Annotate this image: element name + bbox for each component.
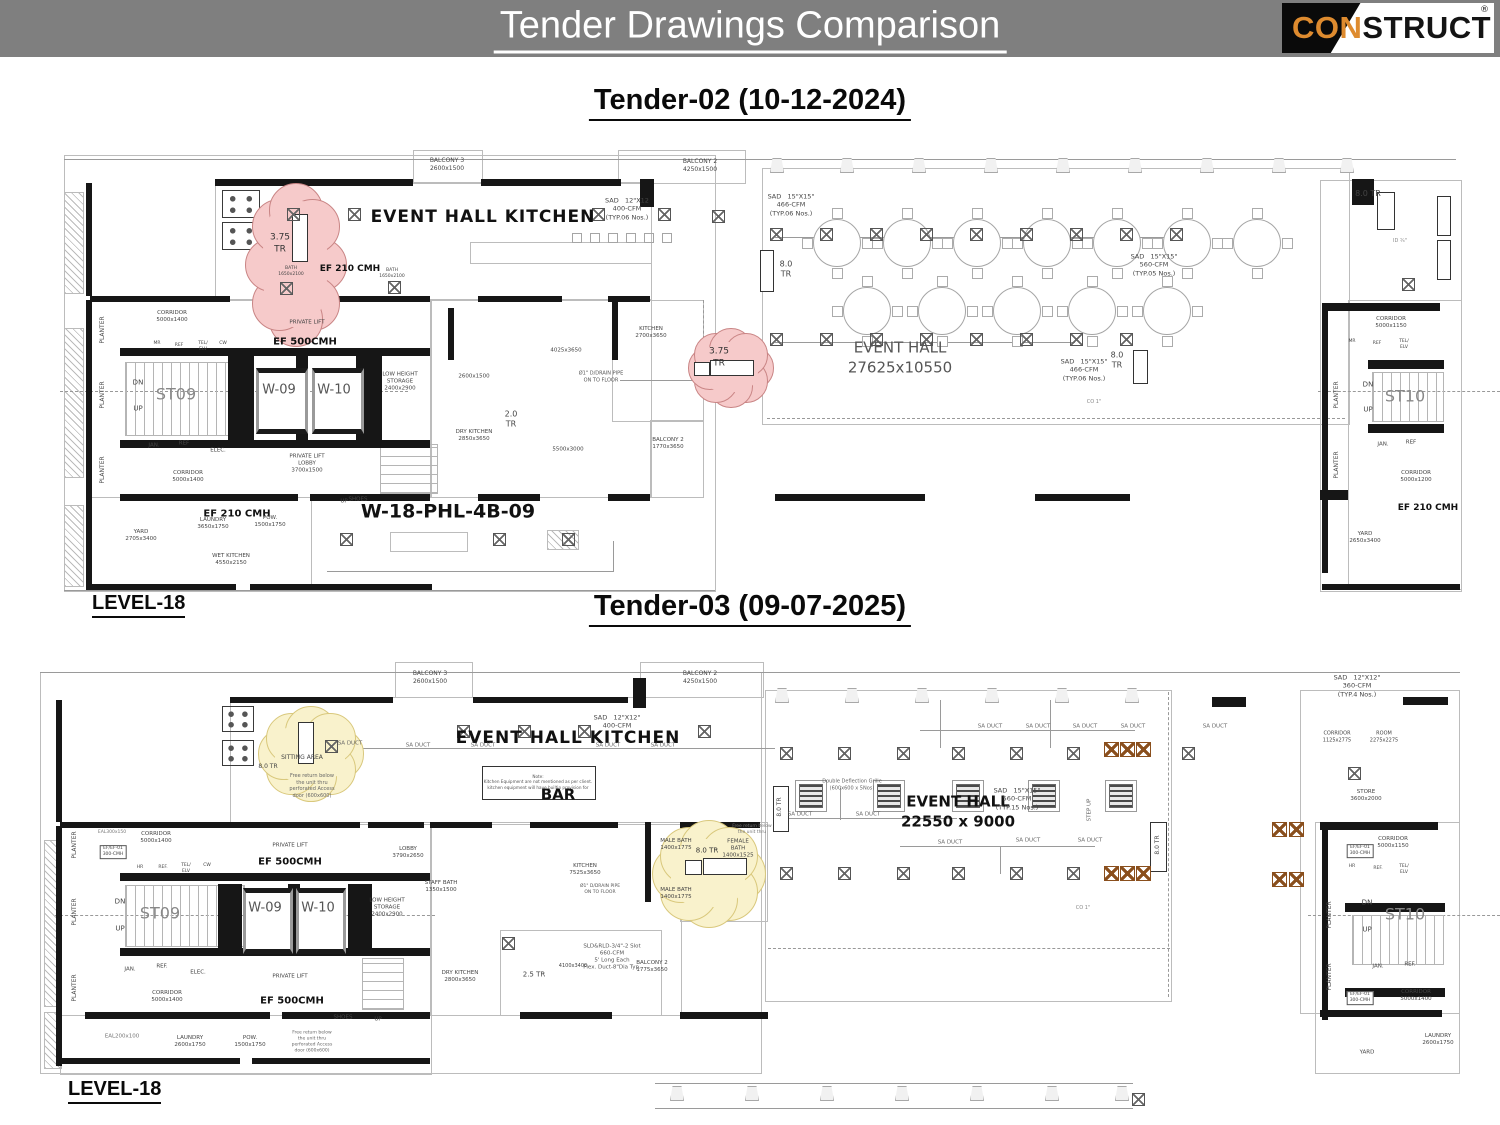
drawing-label: ELEC. xyxy=(190,969,206,976)
room-outline xyxy=(88,497,312,591)
wall xyxy=(473,697,628,703)
room-outline xyxy=(650,420,704,498)
wall xyxy=(250,584,432,590)
chair xyxy=(1042,268,1053,279)
drawing-label: 4025x3650 xyxy=(550,347,581,354)
wall xyxy=(120,494,298,501)
diffuser-icon xyxy=(1070,333,1083,346)
diffuser-icon xyxy=(698,725,711,738)
chair xyxy=(1087,336,1098,347)
chair xyxy=(1182,268,1193,279)
equipment-marker-icon xyxy=(1104,866,1119,881)
elevator-car xyxy=(312,368,364,434)
drawing-label: W-18-PHL-4B-09 xyxy=(361,500,535,525)
chair xyxy=(907,306,918,317)
drawing-label: EF 500CMH xyxy=(258,856,322,869)
wall xyxy=(645,822,651,902)
wall xyxy=(520,1012,612,1019)
diffuser-icon xyxy=(1070,228,1083,241)
equipment-marker-icon xyxy=(1289,872,1304,887)
staircase xyxy=(362,958,404,1010)
hatched-area xyxy=(64,505,84,587)
drawing-label: EF/EF-01 300-CMH xyxy=(100,845,127,859)
column xyxy=(970,1086,984,1101)
wall xyxy=(1212,697,1246,707)
ac-unit xyxy=(1133,350,1148,384)
drawing-label: Free return below the unit thru perforat… xyxy=(292,1030,333,1053)
drawing-label: REF xyxy=(175,343,184,349)
equipment-marker-icon xyxy=(1104,742,1119,757)
drawing-label: REF xyxy=(1373,341,1382,347)
drawing-label: 3.75 TR xyxy=(270,232,290,255)
drawing-label: HR xyxy=(1349,864,1356,870)
stool xyxy=(626,233,636,243)
drawing-label: MR xyxy=(1348,339,1355,345)
equipment-marker-icon xyxy=(1272,872,1287,887)
column xyxy=(1045,1086,1059,1101)
round-table xyxy=(883,219,931,267)
drawing-label: SAD 12"X12" 400-CFM xyxy=(594,714,641,731)
chair xyxy=(832,306,843,317)
chair xyxy=(1152,238,1163,249)
drawing-label: KITCHEN 2700x3650 xyxy=(635,326,666,340)
drawing-label: BALCONY 2 4250x1500 xyxy=(683,158,717,174)
drawing-label: DN xyxy=(1362,898,1373,907)
drawing-label: CORRIDOR 1125x2775 xyxy=(1323,731,1351,744)
plan-line xyxy=(900,846,1095,847)
equipment-marker-icon xyxy=(1120,866,1135,881)
drawing-label: EF 500CMH xyxy=(273,336,337,349)
staircase xyxy=(380,444,438,494)
ac-unit xyxy=(760,250,774,292)
drawing-label: DN xyxy=(133,378,144,387)
drawing-label: SAD 15"X15" 560-CFM (TYP.05 Nos.) xyxy=(1131,252,1178,277)
wall xyxy=(680,1012,768,1019)
header-bar: Tender Drawings Comparison xyxy=(0,0,1500,57)
drawing-label: SA DUCT xyxy=(596,742,621,749)
construct-logo: CONSTRUCT ® xyxy=(1282,3,1494,53)
drawing-label: DRY KITCHEN 2850x3650 xyxy=(456,429,493,443)
grille-diffuser-icon xyxy=(799,784,823,808)
hatched-area xyxy=(64,328,84,478)
drawing-label: FEMALE BATH 1400x1525 xyxy=(722,838,753,859)
drawing-label: SA DUCT xyxy=(1078,837,1103,844)
drawing-label: PRIVATE LIFT xyxy=(289,319,324,326)
drawing-label: LOW HEIGHT STORAGE 2400x2900 xyxy=(382,371,417,392)
drawing-label: 8.0 TR xyxy=(780,260,793,281)
drawing-label: 8.0 TR xyxy=(258,763,277,771)
drawing-label: PLANTER xyxy=(1333,451,1341,478)
column xyxy=(745,1086,759,1101)
wall xyxy=(85,1012,270,1019)
drawing-label: SA DUCT xyxy=(938,839,963,846)
diffuser-icon xyxy=(493,533,506,546)
chair xyxy=(1012,276,1023,287)
stool xyxy=(644,233,654,243)
drawing-label: BALCONY 2 1770x3650 xyxy=(652,437,684,451)
drawing-label: W-09 xyxy=(262,383,296,400)
chair xyxy=(1162,336,1173,347)
drawing-label: Free return below the unit thru xyxy=(732,824,771,836)
ac-unit xyxy=(694,362,710,376)
chair xyxy=(1192,306,1203,317)
drawing-label: SA DUCT xyxy=(471,742,496,749)
chair xyxy=(972,268,983,279)
wall xyxy=(1403,697,1448,705)
wall xyxy=(228,356,254,442)
drawing-label: W-10 xyxy=(317,383,351,400)
drawing-label: SLD&RLD-3/4"-2 Slot 660-CFM 5' Long Each… xyxy=(583,944,641,973)
drawing-label: SITTING AREA xyxy=(281,754,323,762)
wall xyxy=(1320,490,1348,500)
drawing-label: EF/EF-01 300-CMH xyxy=(1347,991,1374,1005)
diffuser-icon xyxy=(280,282,293,295)
logo-text: CONSTRUCT xyxy=(1292,10,1491,46)
wall xyxy=(1322,303,1440,311)
chair xyxy=(1082,238,1093,249)
drawing-label: PLANTER xyxy=(71,831,79,858)
drawing-label: UP xyxy=(115,924,124,933)
diffuser-icon xyxy=(952,747,965,760)
round-table xyxy=(1233,219,1281,267)
drawing-label: CORRIDOR 5000x1400 xyxy=(172,470,203,484)
drawing-label: CORRIDOR 5000x1400 xyxy=(140,831,171,845)
wall xyxy=(1322,311,1328,573)
plan-line xyxy=(655,1108,1133,1109)
round-table xyxy=(1023,219,1071,267)
round-table xyxy=(918,287,966,335)
drawing-label: CO 1" xyxy=(1087,399,1102,406)
equipment-marker-icon xyxy=(1289,822,1304,837)
chair xyxy=(1042,306,1053,317)
diffuser-icon xyxy=(287,208,300,221)
section-dash-line xyxy=(768,948,1170,949)
column xyxy=(820,1086,834,1101)
ac-unit xyxy=(1437,240,1451,280)
chair xyxy=(972,208,983,219)
drawing-label: ROOM 2275x2275 xyxy=(1370,731,1398,744)
drawing-label: UP xyxy=(340,498,347,505)
drawing-label: MALE BATH 1400x1775 xyxy=(660,838,691,852)
stool xyxy=(608,233,618,243)
drawing-label: STAFF BATH 1350x1500 xyxy=(425,880,458,894)
diffuser-icon xyxy=(1020,333,1033,346)
logo-con: CON xyxy=(1292,10,1362,45)
drawing-label: EVENT HALL KITCHEN xyxy=(371,206,596,228)
drawing-label: LOW HEIGHT STORAGE 2400x2900 xyxy=(369,897,404,918)
drawing-label: BATH 1650x2100 xyxy=(278,266,304,278)
drawing-label: SA DUCT xyxy=(1203,723,1228,730)
diffuser-icon xyxy=(502,937,515,950)
chair xyxy=(1132,306,1143,317)
wall xyxy=(252,1058,430,1064)
drawing-label: W-09 xyxy=(248,901,282,918)
chair xyxy=(1117,306,1128,317)
diffuser-icon xyxy=(712,210,725,223)
drawing-label: TEL/ ELV xyxy=(181,863,191,875)
drawing-label: SA DUCT xyxy=(1121,723,1146,730)
stove-symbol xyxy=(222,740,254,766)
drawing-label: BALCONY 2 1775x3650 xyxy=(636,960,668,974)
drawing-label: BAR xyxy=(541,785,576,805)
elevator-car xyxy=(296,888,346,954)
drawing-label: BALCONY 2 4250x1500 xyxy=(683,670,717,686)
wall xyxy=(478,296,562,302)
drawing-label: 4100x3400 xyxy=(559,963,587,970)
plan-line xyxy=(64,159,1456,160)
plan-line xyxy=(327,571,614,572)
drawing-label: EAL200x100 xyxy=(105,1033,140,1040)
wall xyxy=(633,678,646,708)
diffuser-icon xyxy=(325,740,338,753)
drawing-label: UP xyxy=(133,404,142,413)
column xyxy=(1115,1086,1129,1101)
drawing-label: SA DUCT xyxy=(978,723,1003,730)
drawing-label: REF. xyxy=(1404,961,1415,968)
chair xyxy=(1252,268,1263,279)
chair xyxy=(892,306,903,317)
chair xyxy=(1112,208,1123,219)
drawing-label: 8.0 TR xyxy=(1111,351,1124,372)
diffuser-icon xyxy=(838,867,851,880)
diffuser-icon xyxy=(770,228,783,241)
diffuser-icon xyxy=(952,867,965,880)
diffuser-icon xyxy=(970,228,983,241)
wall xyxy=(120,348,430,356)
round-table xyxy=(813,219,861,267)
drawing-label: 8.0 TR xyxy=(1355,189,1381,199)
wall xyxy=(90,296,230,302)
wall xyxy=(120,440,430,448)
drawing-label: STEP UP xyxy=(1086,799,1093,822)
stool xyxy=(662,233,672,243)
drawing-label: CORRIDOR 5000x1150 xyxy=(1375,316,1406,330)
diffuser-icon xyxy=(897,867,910,880)
diffuser-icon xyxy=(1010,747,1023,760)
diffuser-icon xyxy=(1067,747,1080,760)
drawing-label: TEL/ ELV xyxy=(1399,339,1409,351)
drawing-label: UP xyxy=(1363,405,1372,414)
wall xyxy=(1368,360,1444,369)
drawing-label: 8.0 TR xyxy=(1154,835,1162,854)
drawing-label: 3.75 TR xyxy=(709,346,729,369)
ac-unit xyxy=(1437,196,1451,236)
chair xyxy=(942,238,953,249)
drawing-label: EF 210 CMH xyxy=(1398,503,1458,515)
diffuser-icon xyxy=(1120,228,1133,241)
drawing-label: MALE BATH 1400x1775 xyxy=(660,887,691,901)
stool xyxy=(572,233,582,243)
drawing-label: CORRIDOR 5000x1400 xyxy=(156,310,187,324)
drawing-label: SA DUCT xyxy=(1073,723,1098,730)
drawing-label: 2.0 TR xyxy=(505,410,518,431)
drawing-label: ST09 xyxy=(156,385,196,406)
diffuser-icon xyxy=(1348,767,1361,780)
drawing-label: SA DUCT xyxy=(856,811,881,818)
drawing-label: ST10 xyxy=(1385,905,1425,926)
diffuser-icon xyxy=(1120,333,1133,346)
wall xyxy=(56,700,62,822)
room-outline xyxy=(470,242,652,264)
level-label-top: LEVEL-18 xyxy=(92,592,185,618)
drawing-label: PLANTER xyxy=(99,316,107,343)
drawing-label: POW. 1500x1750 xyxy=(234,1035,265,1049)
tender03-heading: Tender-03 (09-07-2025) xyxy=(589,590,911,627)
wall xyxy=(86,584,236,590)
chair xyxy=(1282,238,1293,249)
drawing-label: REF. xyxy=(158,865,167,871)
drawing-label: PLANTER xyxy=(99,381,107,408)
drawing-label: CW xyxy=(203,863,211,869)
drawing-label: REF xyxy=(1406,439,1416,446)
chair xyxy=(832,268,843,279)
wall xyxy=(430,822,492,828)
column xyxy=(895,1086,909,1101)
level-label-bottom: LEVEL-18 xyxy=(68,1078,161,1104)
diffuser-icon xyxy=(388,281,401,294)
drawing-label: KITCHEN 7525x3650 xyxy=(569,863,600,877)
drawing-label: SAD 12"X12 400-CFM (TYP.06 Nos.) xyxy=(605,196,649,221)
wall xyxy=(612,300,618,360)
chair xyxy=(832,208,843,219)
drawing-label: 2600x1500 xyxy=(458,373,489,380)
chair xyxy=(862,276,873,287)
drawing-label: 8.0 TR xyxy=(776,797,784,816)
diffuser-icon xyxy=(970,333,983,346)
drawing-label: LAUNDRY 2600x1750 xyxy=(1422,1033,1453,1047)
diffuser-icon xyxy=(770,333,783,346)
drawing-label: 8.0 TR xyxy=(696,846,719,855)
hatched-area xyxy=(64,192,84,294)
wall xyxy=(1368,424,1444,433)
drawing-label: YARD xyxy=(1360,1049,1375,1056)
chair xyxy=(967,306,978,317)
drawing-label: CORRIDOR 5000x1400 xyxy=(151,990,182,1004)
drawing-label: PLANTER xyxy=(71,974,79,1001)
drawing-label: REF xyxy=(179,440,189,447)
drawing-label: EF 500CMH xyxy=(260,995,324,1008)
drawing-label: SA DUCT xyxy=(651,742,676,749)
wall xyxy=(1320,1010,1442,1017)
drawing-label: REF. xyxy=(156,963,167,970)
slide: Tender Drawings Comparison CONSTRUCT ® T… xyxy=(0,0,1500,1125)
elevator-car xyxy=(243,888,293,954)
chair xyxy=(902,208,913,219)
round-table xyxy=(1143,287,1191,335)
drawing-label: UP xyxy=(374,1016,381,1023)
round-table xyxy=(993,287,1041,335)
diffuser-icon xyxy=(897,747,910,760)
drawing-label: PLANTER xyxy=(1333,381,1341,408)
diffuser-icon xyxy=(820,333,833,346)
drawing-label: SA DUCT xyxy=(1026,723,1051,730)
round-table xyxy=(1068,287,1116,335)
section-dash-line xyxy=(767,418,1345,419)
wall xyxy=(86,183,92,296)
drawing-label: POW. 1500x1750 xyxy=(254,515,285,529)
chair xyxy=(802,238,813,249)
drawing-label: CO 1" xyxy=(1076,905,1091,912)
drawing-label: YARD 2650x3400 xyxy=(1349,531,1380,545)
drawing-label: PLANTER xyxy=(1326,901,1334,928)
logo-struct: STRUCT xyxy=(1362,10,1491,45)
diffuser-icon xyxy=(780,867,793,880)
drawing-label: JAN. xyxy=(148,442,159,449)
chair xyxy=(1182,208,1193,219)
drawing-label: TEL/ ELV xyxy=(1399,864,1409,876)
diffuser-icon xyxy=(820,228,833,241)
round-table xyxy=(953,219,1001,267)
drawing-label: ST09 xyxy=(140,904,180,925)
drawing-label: Note: Kitchen Equipment are not mentione… xyxy=(484,774,593,790)
ac-unit xyxy=(703,858,747,875)
wall xyxy=(60,1058,240,1064)
drawing-label: SA DUCT xyxy=(338,740,363,747)
tender02-heading: Tender-02 (10-12-2024) xyxy=(589,84,911,121)
wall xyxy=(1035,494,1130,501)
wall xyxy=(120,873,430,881)
drawing-label: BALCONY 3 2600x1500 xyxy=(430,157,464,173)
drawing-label: Ø1" D/DRAIN PIPE ON TO FLOOR xyxy=(579,371,624,384)
drawing-label: PLANTER xyxy=(99,456,107,483)
diffuser-icon xyxy=(1010,867,1023,880)
drawing-label: JAN. xyxy=(1377,441,1388,448)
wall xyxy=(481,179,621,186)
room-outline xyxy=(390,532,468,552)
diffuser-icon xyxy=(348,208,361,221)
drawing-label: PLANTER xyxy=(1326,963,1334,990)
drawing-label: DN xyxy=(115,897,126,906)
drawing-label: SAD 15"X15" 560-CFM (TYP.15 Nos.) xyxy=(994,786,1041,811)
drawing-label: EVENT HALL 27625x10550 xyxy=(848,339,952,378)
drawing-label: Ø1" D/DRAIN PIPE ON TO FLOOR xyxy=(580,884,620,896)
drawing-label: 2.5 TR xyxy=(523,970,546,979)
diffuser-icon xyxy=(780,747,793,760)
diffuser-icon xyxy=(1132,1093,1145,1106)
drawing-label: 5500x3000 xyxy=(552,446,583,453)
drawing-label: EAL300x150 xyxy=(98,830,126,836)
page-title: Tender Drawings Comparison xyxy=(494,4,1007,53)
chair xyxy=(1112,268,1123,279)
wall xyxy=(282,1012,430,1019)
dash-line-vertical xyxy=(1168,692,1169,997)
drawing-label: LAUNDRY 3650x1750 xyxy=(197,517,228,531)
drawing-label: LAUNDRY 2600x1750 xyxy=(174,1035,205,1049)
grille-diffuser-icon xyxy=(1109,784,1133,808)
drawing-label: EF 210 CMH xyxy=(320,264,380,276)
diffuser-icon xyxy=(1402,278,1415,291)
plan-line xyxy=(840,788,841,820)
equipment-marker-icon xyxy=(1272,822,1287,837)
equipment-marker-icon xyxy=(1136,742,1151,757)
round-table xyxy=(843,287,891,335)
drawing-label: BATH 1650x2100 xyxy=(379,268,405,280)
equipment-marker-icon xyxy=(1120,742,1135,757)
ac-unit xyxy=(685,860,702,875)
drawing-label: ELEC. xyxy=(210,447,226,454)
drawing-label: JAN. xyxy=(124,966,135,973)
chair xyxy=(1222,238,1233,249)
plan-line xyxy=(613,541,614,572)
column xyxy=(670,1086,684,1101)
diffuser-icon xyxy=(870,228,883,241)
drawing-label: LOBBY 3790x2650 xyxy=(392,846,423,860)
chair xyxy=(1087,276,1098,287)
wall xyxy=(218,884,242,950)
drawing-label: ST10 xyxy=(1385,387,1425,408)
drawing-label: DRY KITCHEN 2800x3650 xyxy=(442,970,479,984)
drawing-label: PRIVATE LIFT xyxy=(272,842,307,849)
